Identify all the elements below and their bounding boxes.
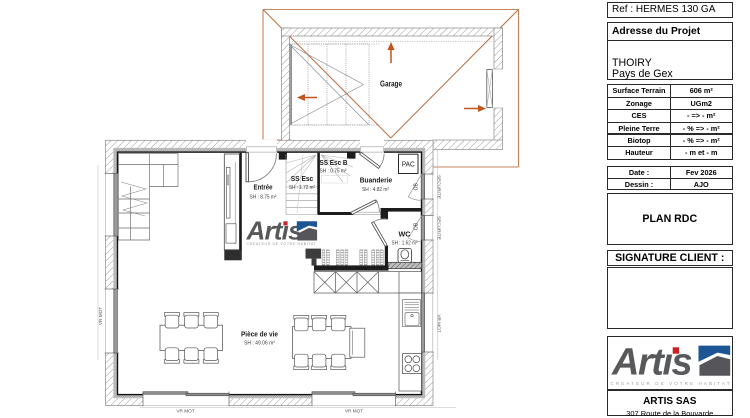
svg-text:Artıs: Artıs: [246, 215, 303, 245]
svg-text:Pièce de vie: Pièce de vie: [241, 329, 278, 338]
svg-text:WC: WC: [399, 230, 411, 239]
svg-text:VR MOT: VR MOT: [176, 409, 194, 414]
svg-text:VR MOT: VR MOT: [437, 314, 442, 332]
svg-text:SH : 4.82 m²: SH : 4.82 m²: [362, 187, 389, 193]
svg-text:SS Esc B: SS Esc B: [320, 158, 348, 167]
svg-text:SH : 49.06 m²: SH : 49.06 m²: [244, 341, 275, 347]
svg-text:VR MOT: VR MOT: [345, 409, 363, 414]
svg-text:SH : 0.75 m²: SH : 0.75 m²: [320, 169, 347, 175]
svg-text:SH : 1.62 m²: SH : 1.62 m²: [392, 241, 418, 247]
svg-text:SH : 8.75 m²: SH : 8.75 m²: [250, 195, 277, 201]
svg-text:PAC: PAC: [402, 160, 415, 169]
svg-text:VR MOT: VR MOT: [98, 307, 103, 325]
svg-text:CREATEUR DE VOTRE HABITAT: CREATEUR DE VOTRE HABITAT: [611, 381, 730, 386]
svg-text:Garage: Garage: [380, 79, 403, 88]
svg-text:SH : 1.72 m²: SH : 1.72 m²: [289, 185, 315, 191]
svg-text:OB: OB: [413, 222, 419, 230]
svg-text:SS Esc: SS Esc: [291, 174, 314, 183]
svg-text:SECURITE: SECURITE: [437, 175, 442, 199]
svg-text:Buanderie: Buanderie: [360, 175, 393, 184]
svg-text:OB: OB: [413, 183, 419, 191]
svg-text:Artıs: Artıs: [611, 342, 691, 384]
svg-text:Entrée: Entrée: [254, 183, 273, 192]
svg-text:CREATEUR DE VOTRE HABITAT: CREATEUR DE VOTRE HABITAT: [246, 242, 316, 246]
svg-text:SECURITE: SECURITE: [437, 216, 442, 240]
